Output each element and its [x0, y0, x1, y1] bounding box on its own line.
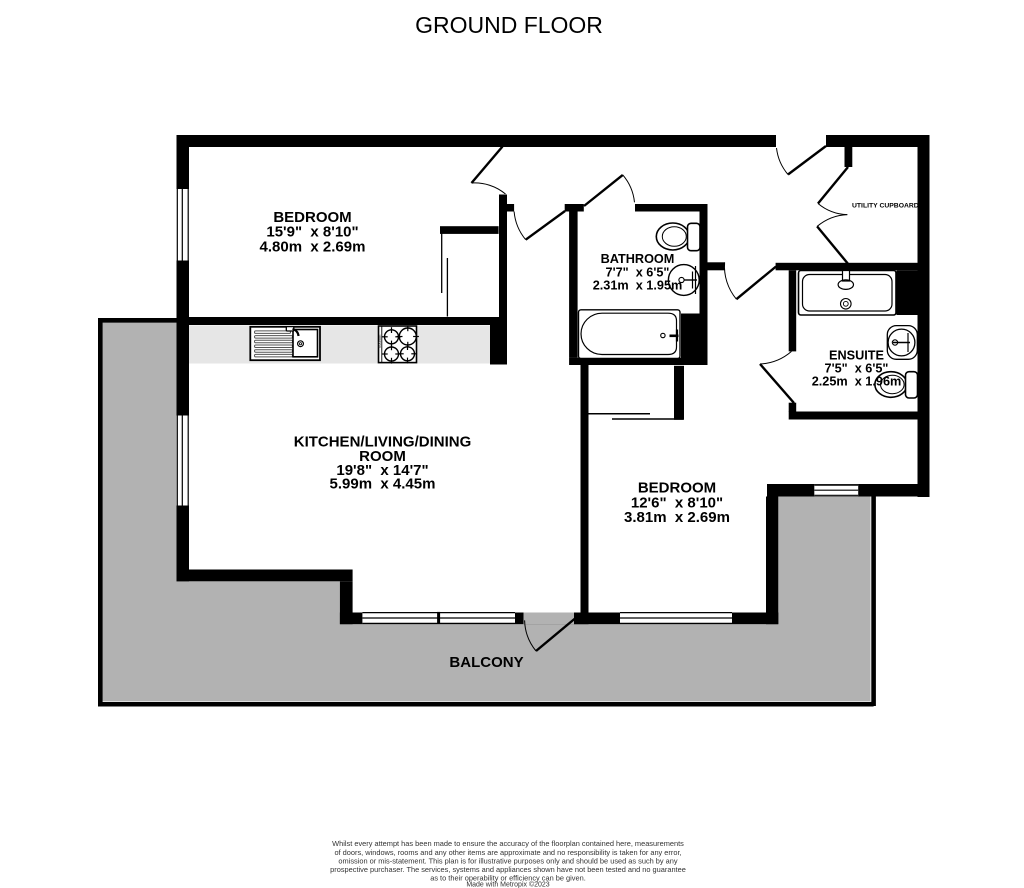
svg-text:2.25m x 1.96m: 2.25m x 1.96m	[812, 375, 902, 389]
svg-text:600mm: 600mm	[377, 334, 382, 348]
svg-text:3.81m x 2.69m: 3.81m x 2.69m	[624, 509, 730, 526]
svg-text:7'5" x 6'5": 7'5" x 6'5"	[825, 362, 889, 376]
svg-text:UTILITY CUPBOARD: UTILITY CUPBOARD	[852, 203, 919, 210]
svg-text:Made with Metropix ©2023: Made with Metropix ©2023	[466, 881, 549, 888]
svg-text:BATHROOM: BATHROOM	[601, 252, 675, 266]
svg-text:7'7" x 6'5": 7'7" x 6'5"	[606, 265, 670, 279]
svg-text:2.31m x 1.95m: 2.31m x 1.95m	[593, 279, 683, 293]
svg-text:GROUND FLOOR: GROUND FLOOR	[415, 12, 603, 38]
svg-text:ENSUITE: ENSUITE	[829, 349, 884, 363]
svg-text:5.99m x 4.45m: 5.99m x 4.45m	[330, 476, 436, 493]
svg-text:BALCONY: BALCONY	[449, 654, 523, 671]
svg-text:4.80m x 2.69m: 4.80m x 2.69m	[260, 239, 366, 256]
